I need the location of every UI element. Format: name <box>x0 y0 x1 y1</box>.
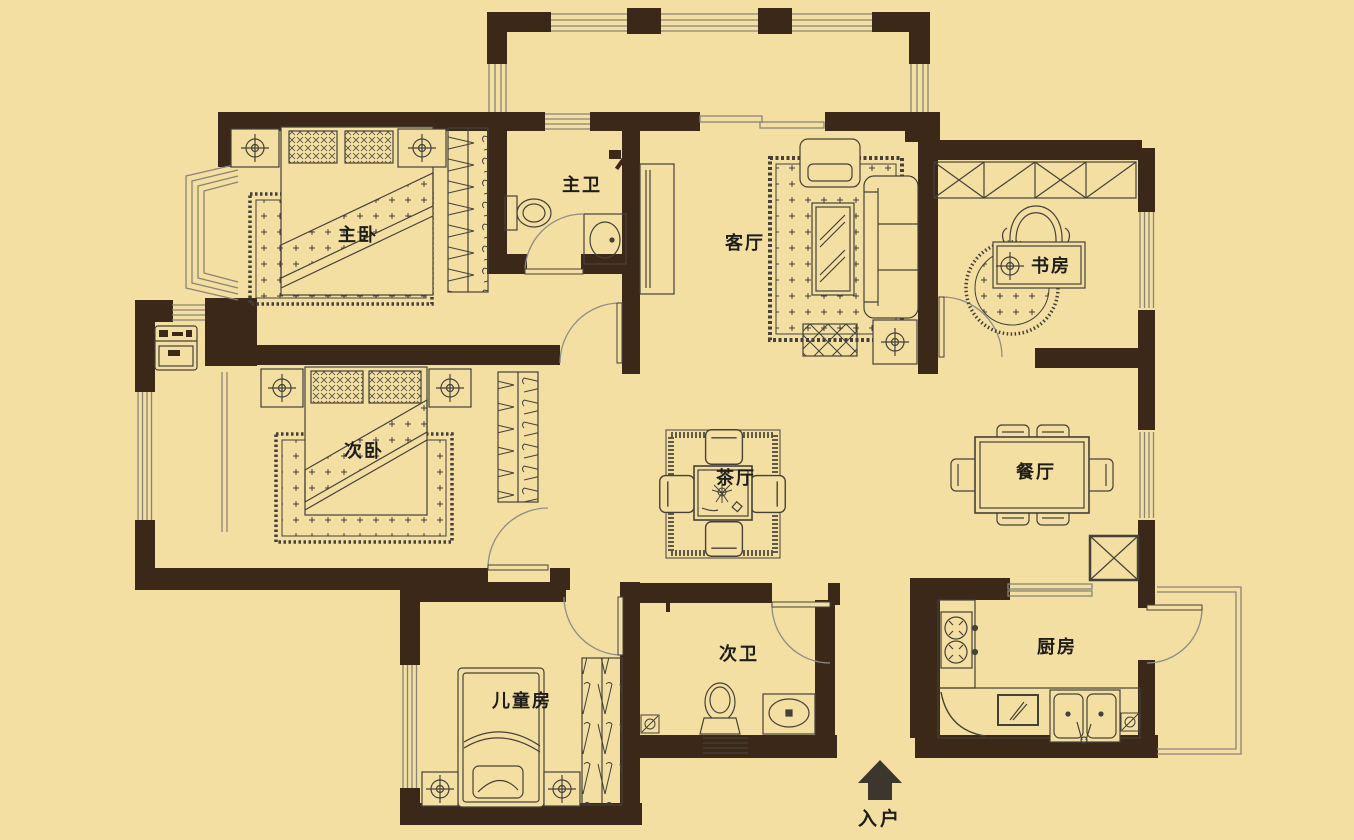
entrance <box>858 760 902 800</box>
second-bath-door-leaf <box>772 602 830 607</box>
master-bedroom-door-arc <box>560 303 620 363</box>
floor-plan-svg: 主卫 主卧 客厅 书房 次卧 茶厅 餐厅 儿童房 次卫 厨房 入户 <box>0 0 1354 840</box>
ottoman <box>803 324 857 356</box>
pillow <box>369 371 421 403</box>
duct-shaft <box>1090 536 1138 580</box>
floor-drain-icon <box>641 715 659 733</box>
second-bedroom-door-leaf <box>488 565 548 570</box>
pillow <box>345 131 393 163</box>
label-living-room: 客厅 <box>725 232 765 254</box>
floor-drain-icon <box>1121 713 1139 731</box>
entry-arrow-icon <box>858 760 902 800</box>
children-room-door-arc <box>564 597 622 655</box>
tea-room <box>660 430 786 558</box>
laundry-niche <box>155 326 197 370</box>
toilet-bowl <box>517 199 551 227</box>
bathroom-sink <box>763 694 815 734</box>
second-bedroom <box>261 367 538 542</box>
stove <box>941 612 978 668</box>
cutting-board <box>998 695 1038 725</box>
master-bedroom <box>231 127 488 304</box>
tea-chair <box>706 522 743 557</box>
children-room-door-leaf <box>618 597 623 655</box>
label-children-room: 儿童房 <box>491 690 552 712</box>
study-door-leaf <box>939 297 944 357</box>
coffee-table <box>812 203 854 295</box>
dining-room <box>951 425 1138 580</box>
tea-chair <box>660 476 695 513</box>
single-bed <box>458 668 544 807</box>
label-master-bedroom: 主卧 <box>338 224 378 246</box>
tv-cabinet <box>640 164 674 294</box>
tea-chair <box>706 430 743 465</box>
label-entrance: 入户 <box>858 807 902 830</box>
toilet <box>700 683 748 753</box>
sink-basin <box>590 222 620 258</box>
corner-counter <box>941 692 985 736</box>
pillow <box>289 131 337 163</box>
desk-chair <box>1003 206 1070 242</box>
label-tea-room: 茶厅 <box>716 467 756 489</box>
children-room <box>422 658 622 807</box>
master-bath-door-arc <box>525 214 583 272</box>
label-kitchen: 厨房 <box>1037 636 1077 658</box>
label-master-bath: 主卫 <box>562 174 602 196</box>
kitchen-door-arc <box>1147 608 1202 663</box>
bookshelf <box>934 162 1136 198</box>
label-second-bedroom: 次卧 <box>344 440 384 462</box>
second-bedroom-door-arc <box>488 508 548 568</box>
label-dining-room: 餐厅 <box>1015 461 1056 483</box>
washing-machine <box>155 326 197 370</box>
study <box>934 162 1136 334</box>
label-study: 书房 <box>1031 255 1071 277</box>
sofa <box>864 176 918 318</box>
living-room <box>770 139 918 364</box>
label-second-bath: 次卫 <box>719 643 759 665</box>
double-sink <box>1050 690 1120 743</box>
kitchen-door-leaf <box>1147 605 1202 610</box>
side-table <box>873 320 917 364</box>
master-bedroom-door-leaf <box>617 303 622 363</box>
kitchen <box>938 600 1140 743</box>
pillow <box>311 371 363 403</box>
second-bath <box>641 593 815 753</box>
floor-plan: 主卫 主卧 客厅 书房 次卧 茶厅 餐厅 儿童房 次卫 厨房 入户 <box>0 0 1354 840</box>
master-bath <box>505 150 626 264</box>
master-bath-door-leaf <box>525 269 583 274</box>
armchair <box>800 139 860 187</box>
